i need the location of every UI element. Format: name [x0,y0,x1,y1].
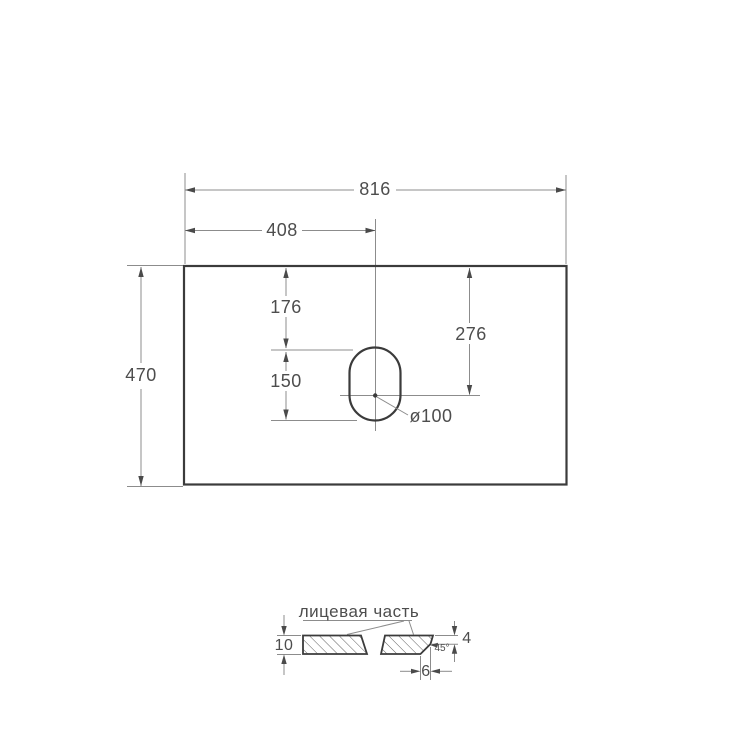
dim-half-width-label: 408 [252,221,312,239]
dim-thickness-label: 10 [254,638,314,654]
dim-hole-top-offset-label: 176 [256,298,316,316]
arrowhead [281,626,286,636]
arrowhead [185,228,195,233]
section-right-block [381,636,433,655]
arrowhead [283,339,288,349]
arrowhead [138,476,143,486]
chamfer-angle-label: 45° [427,644,457,654]
dim-hole-length-label: 150 [256,372,316,390]
hole-center-point [373,393,377,397]
caption-leader-right [409,621,414,635]
arrowhead [467,268,472,278]
dim-width-label: 816 [345,180,405,198]
arrowhead [283,268,288,278]
arrowhead [556,187,566,192]
drawing-page: 816 408 470 176 150 276 ø100 лицевая час… [0,0,750,750]
section-caption: лицевая часть [294,603,424,620]
arrowhead [467,385,472,395]
arrowhead [366,228,376,233]
dim-hole-center-label: 276 [441,325,501,343]
arrowhead [138,267,143,277]
dim-chamfer-depth-label: 6 [411,664,441,680]
arrowhead [281,655,286,665]
arrowhead [185,187,195,192]
arrowhead [283,352,288,362]
arrowhead [283,410,288,420]
dim-depth-label: 470 [111,366,171,384]
dim-hole-diameter-label: ø100 [401,407,461,425]
caption-leader-left [347,621,404,635]
